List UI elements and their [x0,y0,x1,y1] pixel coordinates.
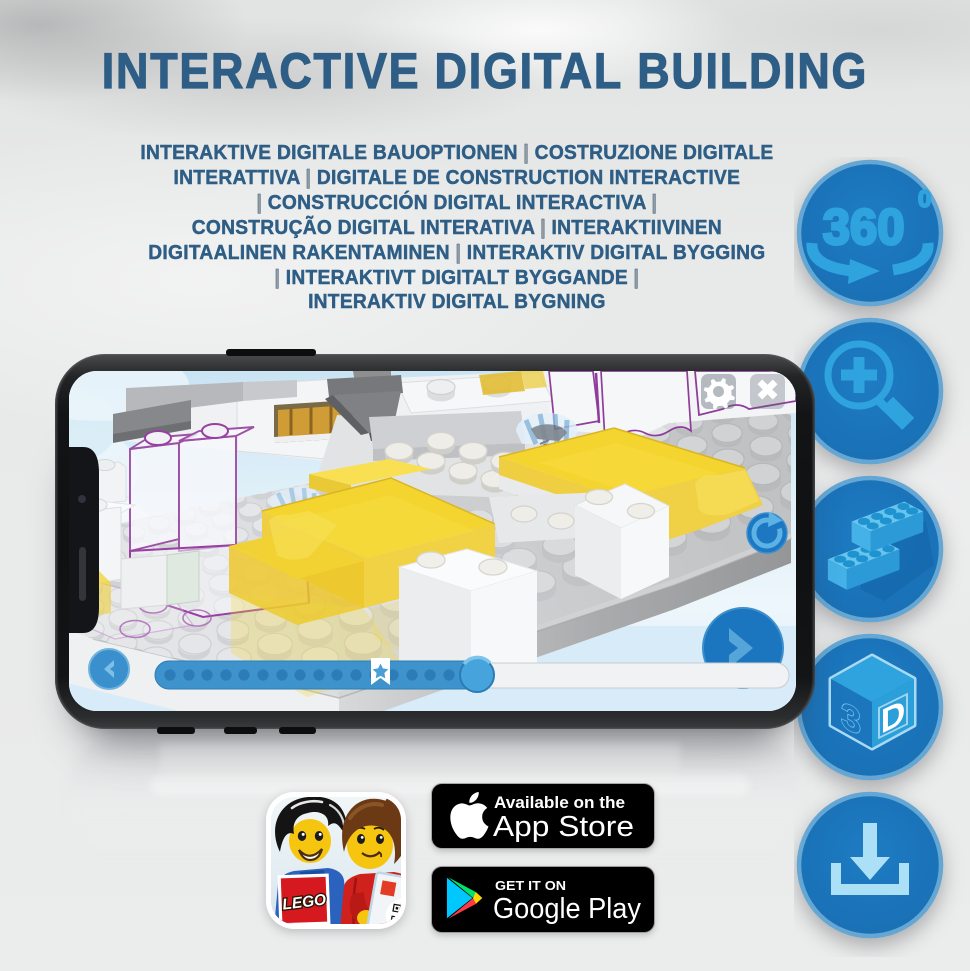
svg-text:GET IT ON: GET IT ON [495,879,566,893]
svg-text:Available on the: Available on the [494,794,625,812]
svg-text:Google Play: Google Play [493,893,641,925]
svg-text:360: 360 [823,200,905,256]
svg-text:App Store: App Store [493,811,634,843]
svg-text:0: 0 [918,186,931,213]
